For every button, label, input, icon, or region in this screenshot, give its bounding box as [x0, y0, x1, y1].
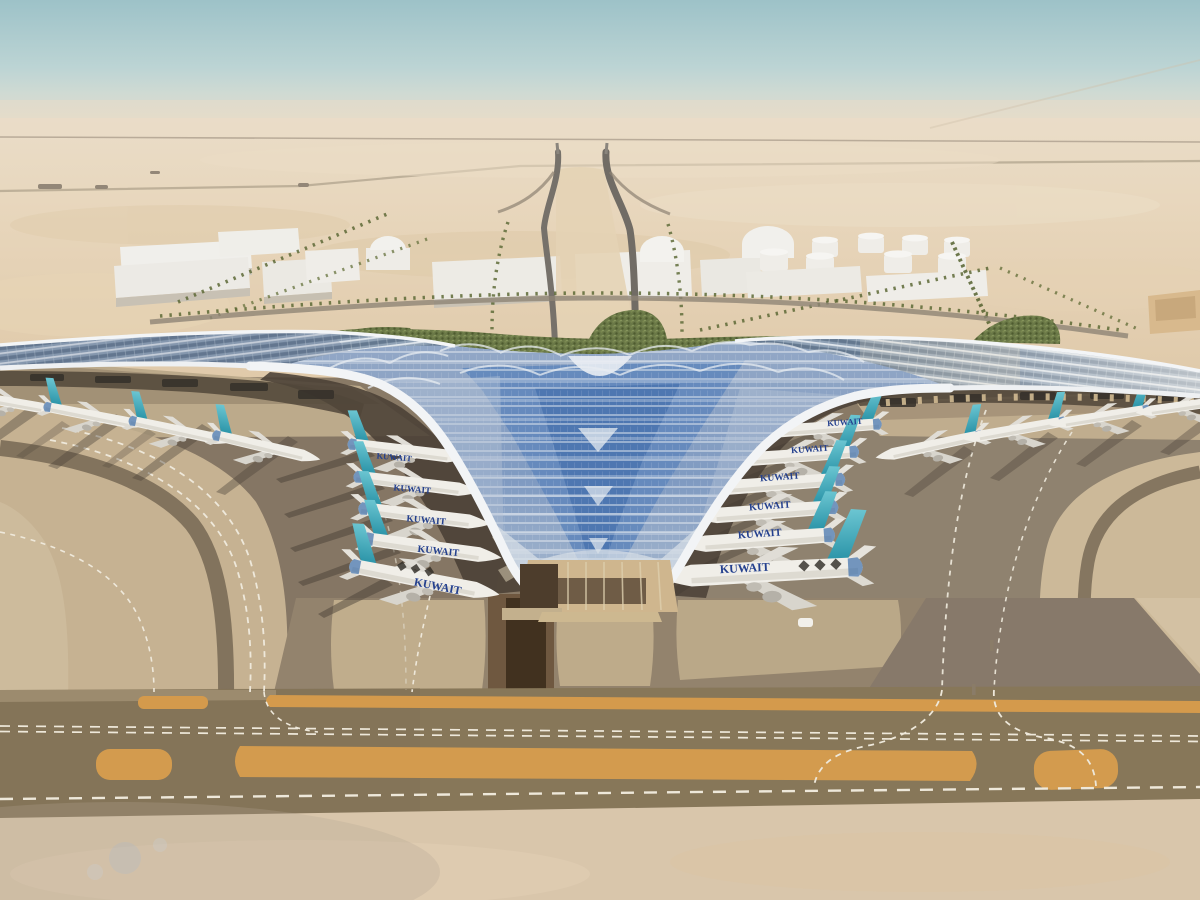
svg-text:KUWAIT: KUWAIT — [719, 560, 770, 577]
